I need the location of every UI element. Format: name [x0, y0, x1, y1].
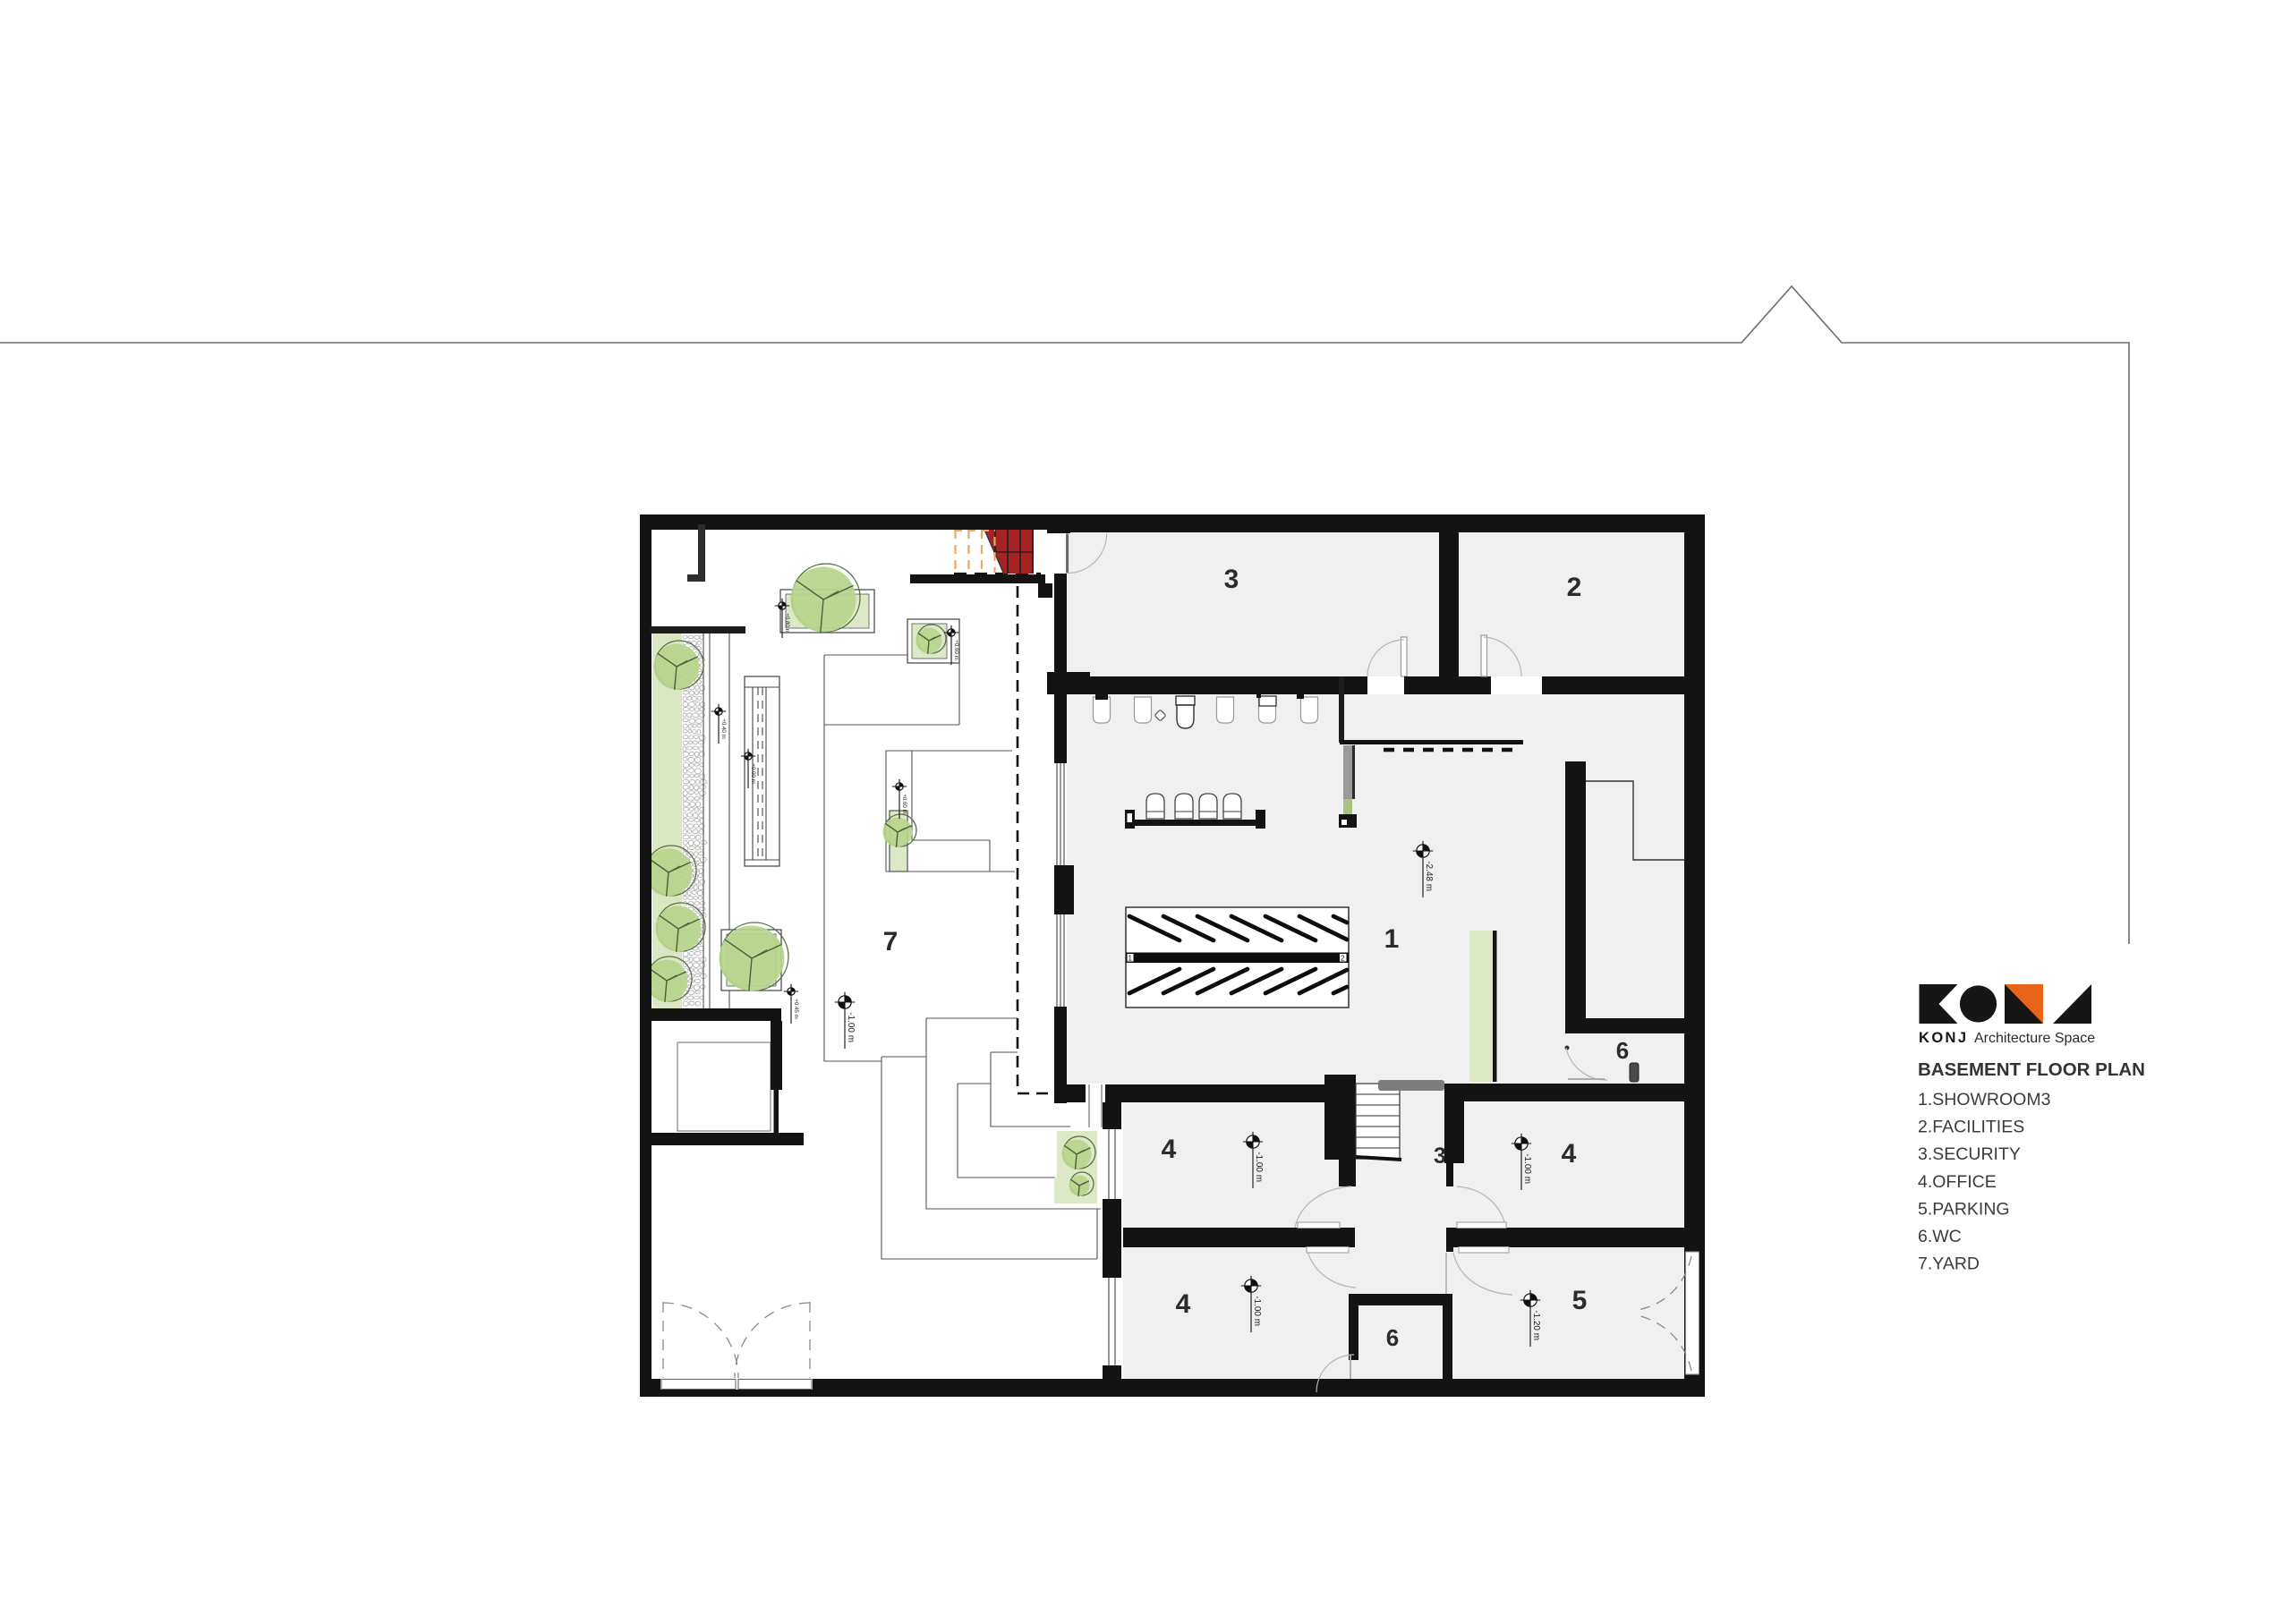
svg-text:4: 4 [1562, 1139, 1577, 1169]
svg-text:6.WC: 6.WC [1918, 1227, 1962, 1246]
svg-text:6: 6 [1386, 1324, 1399, 1351]
svg-text:1.SHOWROOM3: 1.SHOWROOM3 [1918, 1090, 2050, 1110]
svg-text:-1.00 m: -1.00 m [1252, 1296, 1262, 1326]
svg-text:7.YARD: 7.YARD [1918, 1254, 1980, 1274]
svg-text:-1.00 m: -1.00 m [1522, 1153, 1532, 1184]
svg-text:1: 1 [1384, 924, 1400, 954]
svg-text:7: 7 [883, 927, 899, 957]
svg-text:+0.60 m: +0.60 m [953, 640, 959, 660]
svg-text:Architecture Space: Architecture Space [1974, 1031, 2095, 1046]
svg-text:6: 6 [1616, 1037, 1629, 1064]
svg-text:2.FACILITIES: 2.FACILITIES [1918, 1118, 2024, 1137]
svg-text:3: 3 [1434, 1144, 1446, 1169]
svg-text:2: 2 [1341, 955, 1345, 963]
svg-text:KONJ: KONJ [1919, 1030, 1968, 1046]
svg-text:3: 3 [1224, 565, 1239, 594]
svg-text:4: 4 [1176, 1289, 1191, 1319]
svg-text:3.SECURITY: 3.SECURITY [1918, 1144, 2021, 1164]
svg-text:5.PARKING: 5.PARKING [1918, 1199, 2010, 1219]
svg-text:-2.48 m: -2.48 m [1424, 861, 1434, 891]
svg-text:+0.40 m: +0.40 m [720, 718, 727, 739]
svg-text:1: 1 [1128, 955, 1133, 963]
svg-text:BASEMENT FLOOR PLAN: BASEMENT FLOOR PLAN [1918, 1059, 2145, 1080]
svg-text:-1.20 m: -1.20 m [1531, 1310, 1541, 1340]
svg-text:4: 4 [1162, 1135, 1177, 1164]
svg-text:4.OFFICE: 4.OFFICE [1918, 1172, 1997, 1192]
svg-text:2: 2 [1567, 573, 1582, 602]
svg-text:5: 5 [1572, 1286, 1588, 1315]
svg-text:-1.00 m: -1.00 m [1254, 1152, 1264, 1182]
svg-text:+0.45 m: +0.45 m [793, 999, 799, 1019]
svg-text:+0.80 m: +0.80 m [784, 613, 790, 633]
svg-text:+0.60 m: +0.60 m [901, 794, 907, 814]
svg-text:+0.00 m: +0.00 m [750, 763, 756, 784]
svg-text:-1.00 m: -1.00 m [846, 1012, 856, 1042]
